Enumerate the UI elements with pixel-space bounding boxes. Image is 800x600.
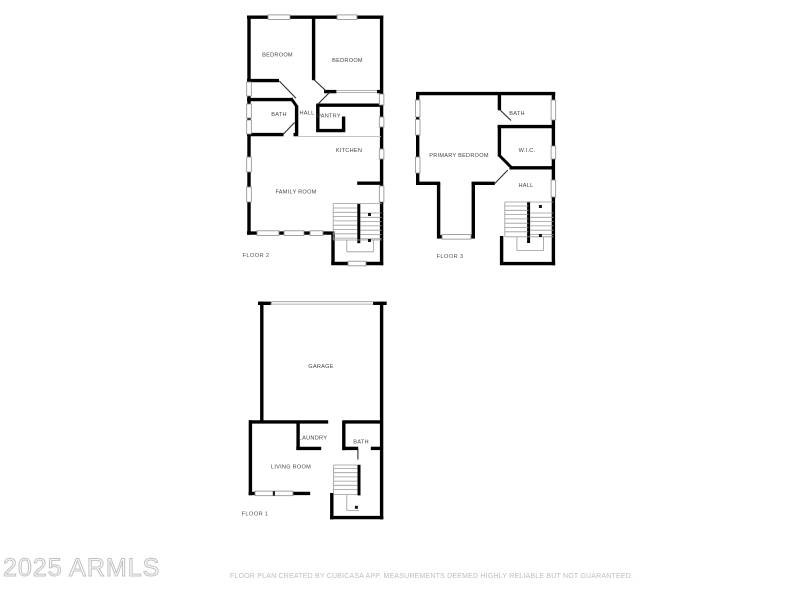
room-label-primary-bedroom: PRIMARY BEDROOM [429, 153, 489, 159]
room-label-bath-f2: BATH [271, 112, 287, 118]
room-label-hall-f2: HALL [300, 111, 315, 117]
floor1-plan: GARAGE LAUNDRY BATH LIVING ROOM FLOOR 1 [242, 302, 387, 520]
room-label-hall-f3: HALL [519, 183, 534, 189]
floor2-closet-slider [336, 91, 377, 93]
room-label-bedroom-2: BEDROOM [332, 58, 363, 64]
room-label-bath-f3: BATH [509, 111, 525, 117]
floor1-title: FLOOR 1 [242, 512, 269, 518]
room-label-laundry: LAUNDRY [299, 436, 327, 442]
floor3-walls [416, 92, 555, 265]
floor3-windows [415, 100, 555, 239]
floor1-walls [249, 302, 387, 520]
room-label-wic: W.I.C. [519, 148, 536, 154]
floor1-windows [255, 491, 293, 496]
garage-door-line [270, 302, 374, 304]
room-label-garage: GARAGE [308, 364, 333, 370]
floor2-title: FLOOR 2 [243, 253, 270, 259]
floor1-stairs-icon [334, 465, 359, 510]
floor2-plan: BEDROOM BEDROOM BATH HALL PANTRY KITCHEN… [243, 15, 384, 266]
floor3-door-leaves [495, 110, 511, 184]
floor-plan-page: BEDROOM BEDROOM BATH HALL PANTRY KITCHEN… [0, 0, 800, 600]
room-label-family-room: FAMILY ROOM [275, 190, 316, 196]
room-label-pantry: PANTRY [317, 114, 341, 120]
floor2-room-labels: BEDROOM BEDROOM BATH HALL PANTRY KITCHEN… [243, 53, 363, 260]
disclaimer-text: FLOOR PLAN CREATED BY CUBICASA APP. MEAS… [230, 573, 580, 580]
floor3-title: FLOOR 3 [437, 254, 464, 260]
floor-plan-drawing: BEDROOM BEDROOM BATH HALL PANTRY KITCHEN… [0, 0, 800, 600]
armls-watermark: 2025 ARMLS [3, 554, 160, 583]
floor3-plan: PRIMARY BEDROOM BATH W.I.C. HALL FLOOR 3 [415, 92, 555, 265]
room-label-bath-f1: BATH [353, 440, 369, 446]
room-label-bedroom-1: BEDROOM [262, 53, 293, 59]
room-label-kitchen: KITCHEN [336, 148, 362, 154]
room-label-living-room: LIVING ROOM [271, 465, 311, 471]
